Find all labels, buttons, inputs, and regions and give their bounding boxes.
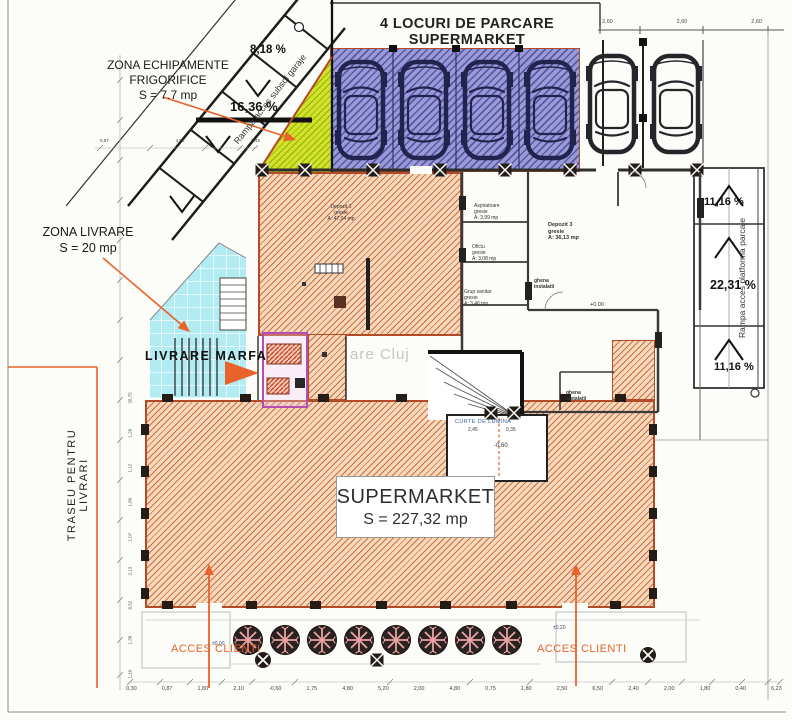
- supermarket-label-box: SUPERMARKET S = 227,32 mp: [336, 476, 495, 538]
- car-icon: [586, 56, 638, 152]
- dim-label: 0,40: [735, 686, 746, 692]
- curte-dim1: 2,45: [468, 427, 478, 433]
- room-depozit3-label: Depozit 3 gresie A: 36,13 mp: [548, 222, 592, 242]
- dim-label: 2,10: [233, 686, 244, 692]
- room-aspiratoare-label: Aspiratoare gresie A: 3,99 mp: [474, 203, 508, 221]
- room-depozit1-label: Depozit 1 gresie A: 47,04 mp: [318, 204, 364, 222]
- tree-icon: [456, 626, 485, 655]
- dims-top: 2,602,602,60: [602, 19, 762, 25]
- tree-icon: [419, 626, 448, 655]
- tree-icon: [382, 626, 411, 655]
- car-icon: [461, 62, 513, 158]
- level-zero-left: ±0.00: [212, 641, 224, 647]
- dim-label: 2,60: [751, 19, 762, 25]
- dim-label: 2,60: [677, 19, 688, 25]
- dim-label: 2,40: [628, 686, 639, 692]
- zona-echipamente-line3: S = 7.7 mp: [98, 88, 238, 103]
- supermarket-name: SUPERMARKET: [337, 486, 495, 509]
- ramp-platform-slope-mid: 22,31 %: [710, 278, 756, 292]
- livrare-marfa-label: LIVRARE MARFA: [145, 349, 267, 363]
- room-line: A: 47,04 mp: [318, 216, 364, 222]
- dim-label: 0,30: [126, 686, 137, 692]
- ramp-platform-slope-top: 11,16 %: [704, 196, 744, 208]
- traseu-livrari-label: TRASEU PENTRU LIVRARI: [66, 400, 80, 570]
- floor-plan: 4 LOCURI DE PARCARE SUPERMARKET ZONA ECH…: [0, 0, 792, 720]
- dim-label: 5,20: [378, 686, 389, 692]
- level-minus-060: -0.60: [494, 443, 508, 449]
- tree-icon: [271, 626, 300, 655]
- level-plus-000: +0.00: [590, 302, 604, 308]
- dim-label: 2,13: [128, 563, 133, 575]
- zona-livrare-label: ZONA LIVRARE S = 20 mp: [28, 224, 148, 257]
- dim-label: 2,60: [602, 19, 613, 25]
- dims-left: 28,751,261,121,801,072,138,521,381,10: [124, 395, 136, 675]
- room-oficiu-label: Oficiu gresie A: 3,08 mp: [472, 244, 502, 262]
- curte-lumina-label: CURTE DE LUMINA: [455, 419, 511, 426]
- dim-label: 4,80: [176, 138, 185, 143]
- dims-bottom: 0,300,871,802,10-0,601,754,805,202,004,8…: [126, 686, 782, 692]
- curte-dim2: 0,35: [506, 427, 516, 433]
- dim-label: 6,50: [592, 686, 603, 692]
- level-plus20-right: ±0.20: [553, 625, 565, 631]
- dims-upper: 0,574,800,45: [100, 138, 260, 143]
- dim-label: 1,80: [521, 686, 532, 692]
- dim-label: 2,00: [414, 686, 425, 692]
- ramp-platform-slope-bottom: 11,16 %: [714, 361, 754, 373]
- dim-label: 1,10: [128, 667, 133, 679]
- ramp-garage-slope-lower: 16,36 %: [230, 99, 278, 114]
- dim-label: 4,80: [449, 686, 460, 692]
- zona-echipamente-label: ZONA ECHIPAMENTE FRIGORIFICE S = 7.7 mp: [98, 58, 238, 103]
- zona-livrare-line1: ZONA LIVRARE: [28, 224, 148, 240]
- room-line: instalatii: [566, 396, 596, 402]
- dim-label: 1,75: [307, 686, 318, 692]
- dim-label: 1,80: [128, 495, 133, 507]
- car-icon: [398, 62, 450, 158]
- room-line: gresie: [548, 229, 592, 236]
- room-ghena2-label: ghena instalatii: [566, 390, 596, 402]
- dim-label: 1,38: [128, 632, 133, 644]
- dim-label: 2,50: [557, 686, 568, 692]
- ramp-garage-slope-upper: 8,18 %: [250, 44, 286, 56]
- zona-livrare-line2: S = 20 mp: [28, 240, 148, 256]
- zona-echipamente-line1: ZONA ECHIPAMENTE: [98, 58, 238, 73]
- dim-label: 0,57: [100, 138, 109, 143]
- dim-label: 0,75: [485, 686, 496, 692]
- dim-label: 8,52: [128, 598, 133, 610]
- room-line: Depozit 3: [548, 222, 592, 229]
- watermark: are Cluj: [350, 346, 410, 363]
- dim-label: 0,45: [251, 138, 260, 143]
- dim-label: 28,75: [128, 392, 133, 404]
- supermarket-area: S = 227,32 mp: [363, 511, 468, 529]
- room-line: A: 3,08 mp: [472, 256, 502, 262]
- tree-icon: [493, 626, 522, 655]
- acces-clienti-right-label: ACCES CLIENTI: [537, 643, 627, 655]
- room-grup-sanitar-label: Grup sanitar gresie A: 3,46 mp: [464, 289, 502, 307]
- room-line: A: 3,46 mp: [464, 301, 502, 307]
- dim-label: 1,80: [197, 686, 208, 692]
- room-line: A: 3,99 mp: [474, 215, 508, 221]
- room-line: A: 36,13 mp: [548, 235, 592, 242]
- dim-label: 1,07: [128, 529, 133, 541]
- dim-label: -0,60: [269, 686, 282, 692]
- room-line: instalatii: [534, 284, 562, 290]
- car-icon: [524, 62, 576, 158]
- dim-label: 0,87: [162, 686, 173, 692]
- tree-icon: [308, 626, 337, 655]
- dim-label: 6,23: [771, 686, 782, 692]
- car-icon: [650, 56, 702, 152]
- dim-label: 1,26: [128, 426, 133, 438]
- dim-label: 1,12: [128, 460, 133, 472]
- car-icon: [335, 62, 387, 158]
- zona-echipamente-line2: FRIGORIFICE: [98, 73, 238, 88]
- dim-label: 4,80: [342, 686, 353, 692]
- dim-label: 2,00: [664, 686, 675, 692]
- page-title: 4 LOCURI DE PARCARE SUPERMARKET: [336, 16, 598, 48]
- tree-icon: [345, 626, 374, 655]
- dim-label: 1,80: [700, 686, 711, 692]
- room-ghena1-label: ghena instalatii: [534, 278, 562, 290]
